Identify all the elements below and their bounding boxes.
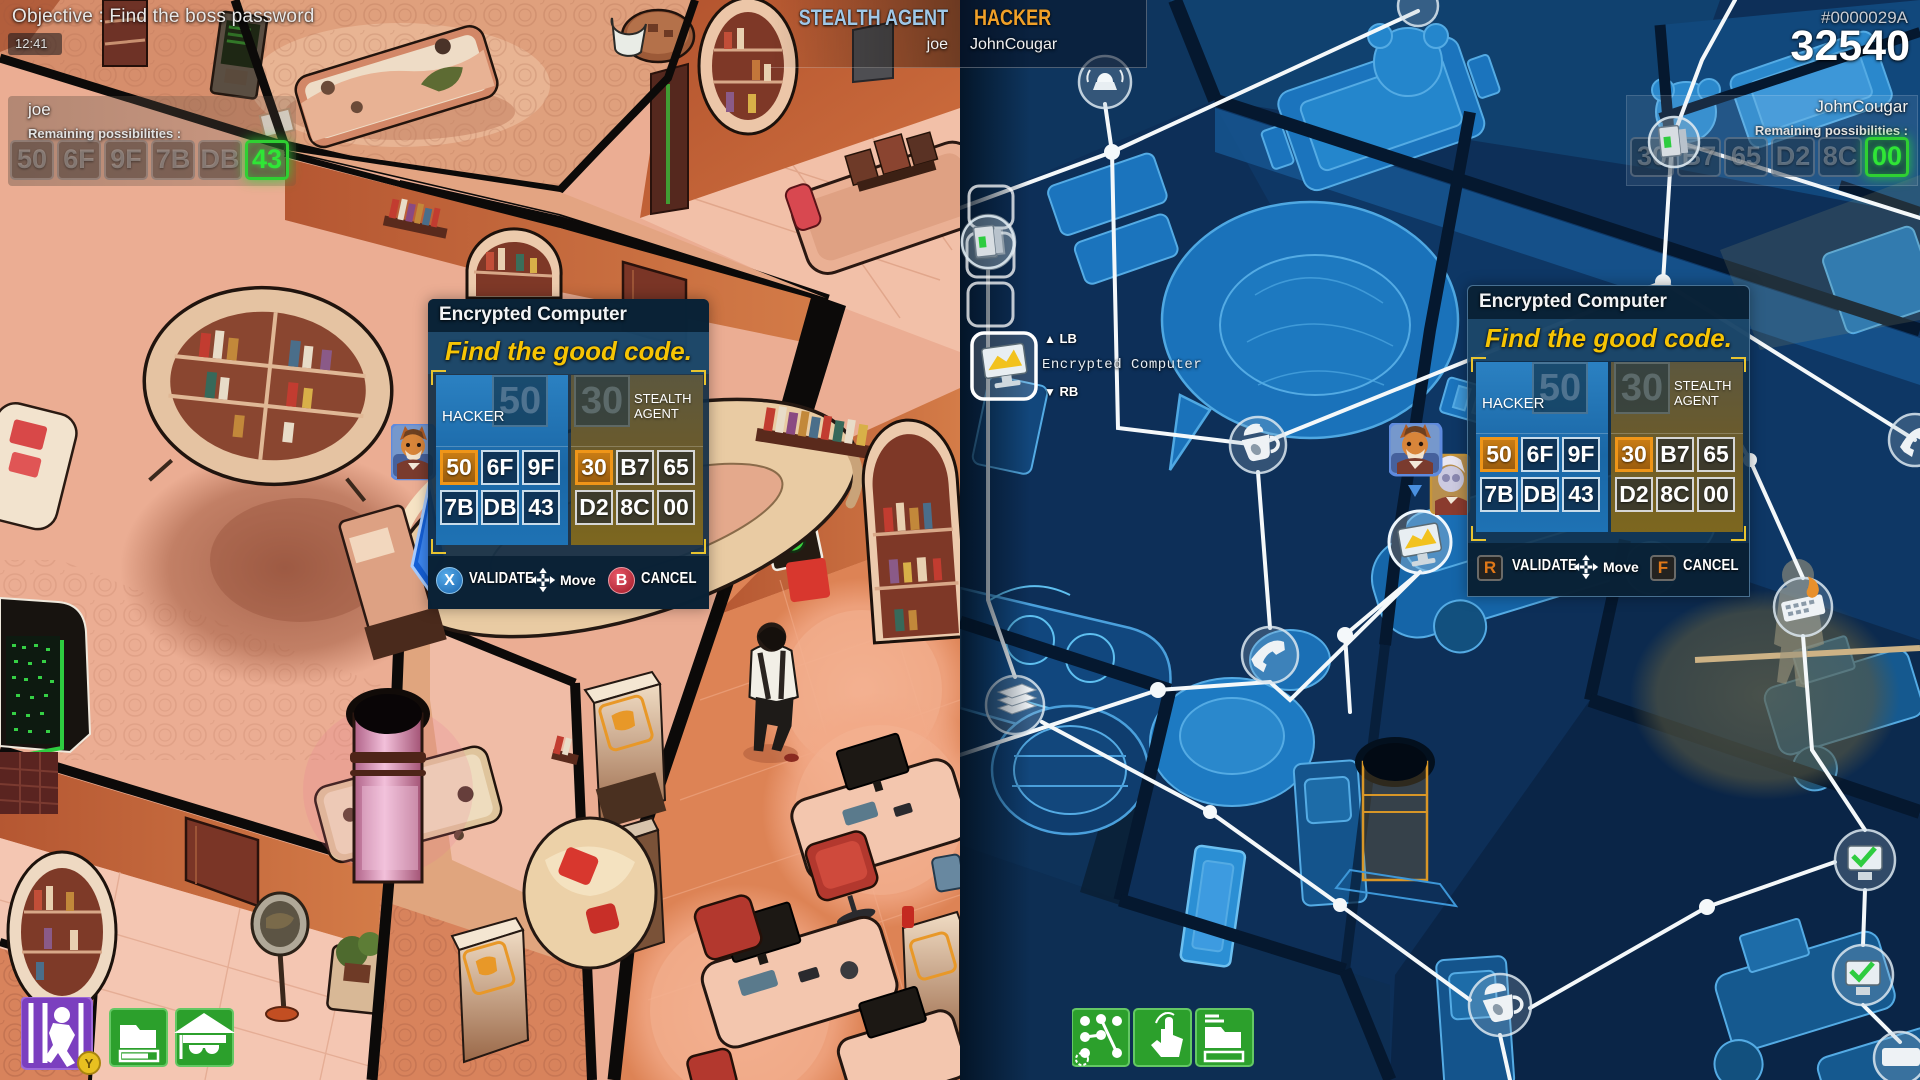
- svg-text:Y: Y: [85, 1056, 94, 1071]
